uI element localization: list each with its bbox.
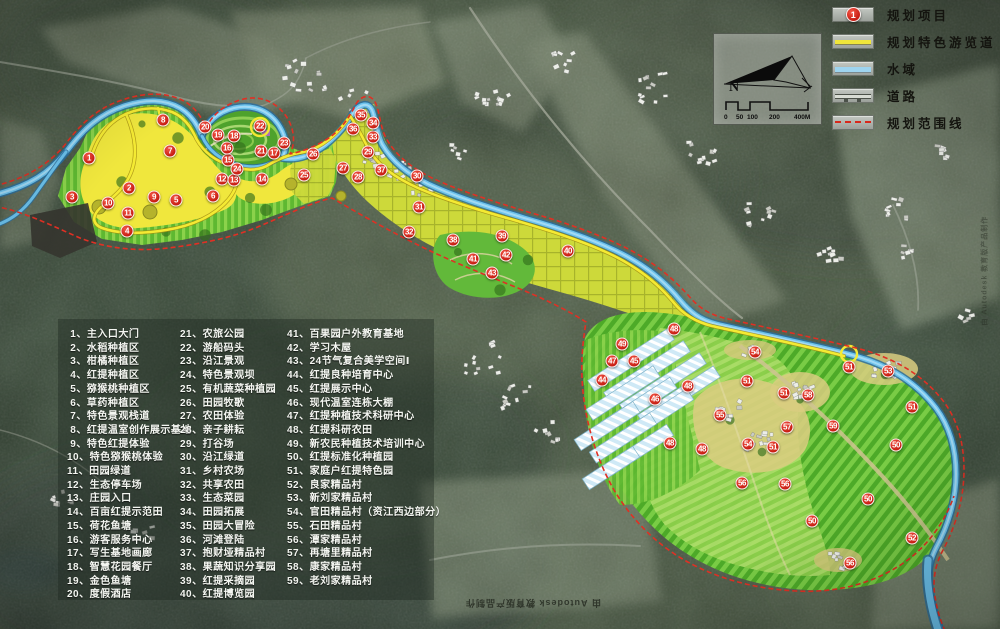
project-marker: 58 [802, 389, 815, 402]
project-marker: 20 [199, 121, 212, 134]
list-item: 42、学习木屋 [287, 342, 446, 356]
project-list-panel: 1、主入口大门 2、水稻种植区 3、柑橘种植区 4、红提种植区 5、猕猴桃种植区… [58, 319, 434, 600]
list-item: 59、老刘家精品村 [287, 575, 446, 589]
project-marker: 56 [844, 557, 857, 570]
list-item: 18、智慧花园餐厅 [67, 561, 192, 575]
planning-map: 由 Autodesk 教育版产品制作 由 Autodesk 教育版产品制作 N … [0, 0, 1000, 629]
project-marker: 3 [66, 191, 79, 204]
list-item: 29、打谷场 [180, 438, 276, 452]
project-marker: 16 [221, 142, 234, 155]
project-marker: 53 [882, 365, 895, 378]
project-marker: 11 [122, 207, 135, 220]
list-item: 34、田园拓展 [180, 506, 276, 520]
list-item: 37、抱财垭精品村 [180, 547, 276, 561]
project-marker: 41 [467, 253, 480, 266]
legend-label: 道路 [887, 86, 918, 105]
list-item: 10、特色猕猴桃体验 [67, 451, 192, 465]
list-item: 36、河滩登陆 [180, 534, 276, 548]
project-marker: 7 [164, 145, 177, 158]
list-item: 58、康家精品村 [287, 561, 446, 575]
list-item: 15、荷花鱼塘 [67, 520, 192, 534]
project-marker: 40 [562, 245, 575, 258]
project-marker: 9 [148, 191, 161, 204]
list-item: 11、田园绿道 [67, 465, 192, 479]
watermark-right: 由 Autodesk 教育版产品制作 [980, 181, 990, 326]
list-item: 54、官田精品村（资江西边部分） [287, 506, 446, 520]
list-item: 53、新刘家精品村 [287, 492, 446, 506]
project-marker: 38 [447, 234, 460, 247]
list-item: 31、乡村农场 [180, 465, 276, 479]
project-marker: 48 [696, 443, 709, 456]
list-item: 38、果蔬知识分享园 [180, 561, 276, 575]
map-legend: 1规划项目规划特色游览道水域道路规划范围线 [832, 6, 996, 141]
list-item: 21、农旅公园 [180, 328, 276, 342]
project-marker: 51 [843, 361, 856, 374]
list-item: 35、田园大冒险 [180, 520, 276, 534]
legend-label: 水域 [887, 59, 918, 78]
project-marker: 51 [906, 401, 919, 414]
project-marker: 51 [767, 441, 780, 454]
list-item: 17、写生基地画廊 [67, 547, 192, 561]
project-marker: 2 [123, 182, 136, 195]
project-marker: 48 [682, 380, 695, 393]
scale-tick: 100 [747, 114, 758, 121]
list-item: 6、草药种植区 [67, 397, 192, 411]
project-marker: 24 [231, 163, 244, 176]
list-item: 9、特色红提体验 [67, 438, 192, 452]
list-item: 33、生态菜园 [180, 492, 276, 506]
project-marker: 32 [403, 226, 416, 239]
list-item: 41、百果园户外教育基地 [287, 328, 446, 342]
project-marker: 42 [500, 249, 513, 262]
list-item: 12、生态停车场 [67, 479, 192, 493]
project-marker: 45 [628, 355, 641, 368]
list-item: 49、新农民种植技术培训中心 [287, 438, 446, 452]
project-marker: 54 [742, 438, 755, 451]
project-marker-icon: 1 [846, 7, 861, 22]
list-item: 16、游客服务中心 [67, 534, 192, 548]
project-marker: 51 [741, 375, 754, 388]
project-marker: 22 [254, 120, 267, 133]
project-marker: 50 [862, 493, 875, 506]
project-marker: 8 [157, 114, 170, 127]
project-marker: 35 [355, 109, 368, 122]
project-marker: 48 [668, 323, 681, 336]
watermark-bottom: 由 Autodesk 教育版产品制作 [428, 597, 638, 610]
project-marker: 6 [207, 190, 220, 203]
north-label: N [729, 80, 739, 96]
list-item: 22、游船码头 [180, 342, 276, 356]
project-marker: 50 [806, 515, 819, 528]
project-marker: 59 [827, 420, 840, 433]
project-marker: 31 [413, 201, 426, 214]
list-item: 26、田园牧歌 [180, 397, 276, 411]
project-marker: 27 [337, 162, 350, 175]
project-marker: 36 [347, 123, 360, 136]
scale-tick: 50 [736, 114, 743, 121]
project-marker: 44 [596, 374, 609, 387]
list-item: 50、红提标准化种植园 [287, 451, 446, 465]
list-item: 20、度假酒店 [67, 588, 192, 602]
legend-swatch-boundary-icon [832, 115, 874, 130]
project-marker: 34 [367, 117, 380, 130]
legend-label: 规划项目 [887, 5, 949, 24]
list-item: 3、柑橘种植区 [67, 355, 192, 369]
list-item: 43、24节气复合美学空间Ⅰ [287, 355, 446, 369]
legend-swatch-water-icon [832, 61, 874, 76]
project-marker: 5 [170, 194, 183, 207]
project-marker: 4 [121, 225, 134, 238]
project-marker: 23 [278, 137, 291, 150]
project-list-column-2: 21、农旅公园22、游船码头23、沿江景观24、特色景观坝25、有机蔬菜种植园2… [180, 328, 276, 602]
legend-swatch-tour-route-icon [832, 34, 874, 49]
list-item: 39、红提采摘园 [180, 575, 276, 589]
list-item: 57、再塘里精品村 [287, 547, 446, 561]
list-item: 46、现代温室连栋大棚 [287, 397, 446, 411]
project-marker: 49 [616, 338, 629, 351]
project-marker: 1 [83, 152, 96, 165]
list-item: 7、特色景观栈道 [67, 410, 192, 424]
list-item: 8、红提温室创作展示基地 [67, 424, 192, 438]
list-item: 1、主入口大门 [67, 328, 192, 342]
legend-label: 规划范围线 [887, 113, 965, 132]
project-marker: 26 [307, 148, 320, 161]
list-item: 45、红提展示中心 [287, 383, 446, 397]
list-item: 47、红提种植技术科研中心 [287, 410, 446, 424]
list-item: 55、石田精品村 [287, 520, 446, 534]
project-marker: 39 [496, 230, 509, 243]
list-item: 48、红提科研农田 [287, 424, 446, 438]
list-item: 27、农田体验 [180, 410, 276, 424]
list-item: 5、猕猴桃种植区 [67, 383, 192, 397]
legend-row: 道路 [832, 87, 996, 104]
project-marker: 17 [268, 147, 281, 160]
list-item: 24、特色景观坝 [180, 369, 276, 383]
project-marker: 57 [781, 421, 794, 434]
project-marker: 29 [362, 146, 375, 159]
project-marker: 21 [255, 145, 268, 158]
list-item: 4、红提种植区 [67, 369, 192, 383]
project-marker: 51 [778, 387, 791, 400]
scale-tick: 200 [769, 114, 780, 121]
project-marker: 43 [486, 267, 499, 280]
list-item: 40、红提博览园 [180, 588, 276, 602]
project-marker: 52 [906, 532, 919, 545]
list-item: 44、红提良种培育中心 [287, 369, 446, 383]
project-marker: 55 [714, 409, 727, 422]
list-item: 56、潭家精品村 [287, 534, 446, 548]
list-item: 51、家庭户红提特色园 [287, 465, 446, 479]
project-marker: 19 [212, 129, 225, 142]
scale-tick: 0 [724, 114, 728, 121]
legend-swatch-marker-icon: 1 [832, 7, 874, 22]
legend-row: 1规划项目 [832, 6, 996, 23]
list-item: 52、良家精品村 [287, 479, 446, 493]
list-item: 2、水稻种植区 [67, 342, 192, 356]
project-marker: 47 [606, 355, 619, 368]
project-marker: 28 [352, 171, 365, 184]
project-marker: 56 [779, 478, 792, 491]
project-marker: 48 [664, 437, 677, 450]
project-marker: 56 [736, 477, 749, 490]
legend-swatch-road-icon [832, 88, 874, 103]
project-marker: 18 [228, 130, 241, 143]
list-item: 13、庄园入口 [67, 492, 192, 506]
legend-label: 规划特色游览道 [887, 32, 996, 51]
project-list-column-3: 41、百果园户外教育基地42、学习木屋43、24节气复合美学空间Ⅰ44、红提良种… [287, 328, 446, 588]
list-item: 25、有机蔬菜种植园 [180, 383, 276, 397]
project-marker: 46 [649, 393, 662, 406]
project-marker: 37 [375, 164, 388, 177]
project-marker: 13 [228, 174, 241, 187]
project-marker: 25 [298, 169, 311, 182]
legend-row: 水域 [832, 60, 996, 77]
list-item: 23、沿江景观 [180, 355, 276, 369]
scale-tick: 400M [794, 114, 810, 121]
project-marker: 33 [367, 131, 380, 144]
project-marker: 10 [102, 197, 115, 210]
project-marker: 30 [411, 170, 424, 183]
compass-rose: N 050100200400M [713, 33, 822, 125]
legend-row: 规划特色游览道 [832, 33, 996, 50]
list-item: 32、共享农田 [180, 479, 276, 493]
project-marker: 14 [256, 173, 269, 186]
list-item: 14、百亩红提示范田 [67, 506, 192, 520]
legend-row: 规划范围线 [832, 114, 996, 131]
project-marker: 54 [749, 346, 762, 359]
project-list-column-1: 1、主入口大门 2、水稻种植区 3、柑橘种植区 4、红提种植区 5、猕猴桃种植区… [67, 328, 192, 602]
list-item: 30、沿江绿道 [180, 451, 276, 465]
north-arrow [714, 34, 819, 124]
list-item: 19、金色鱼塘 [67, 575, 192, 589]
list-item: 28、亲子耕耘 [180, 424, 276, 438]
project-marker: 50 [890, 439, 903, 452]
